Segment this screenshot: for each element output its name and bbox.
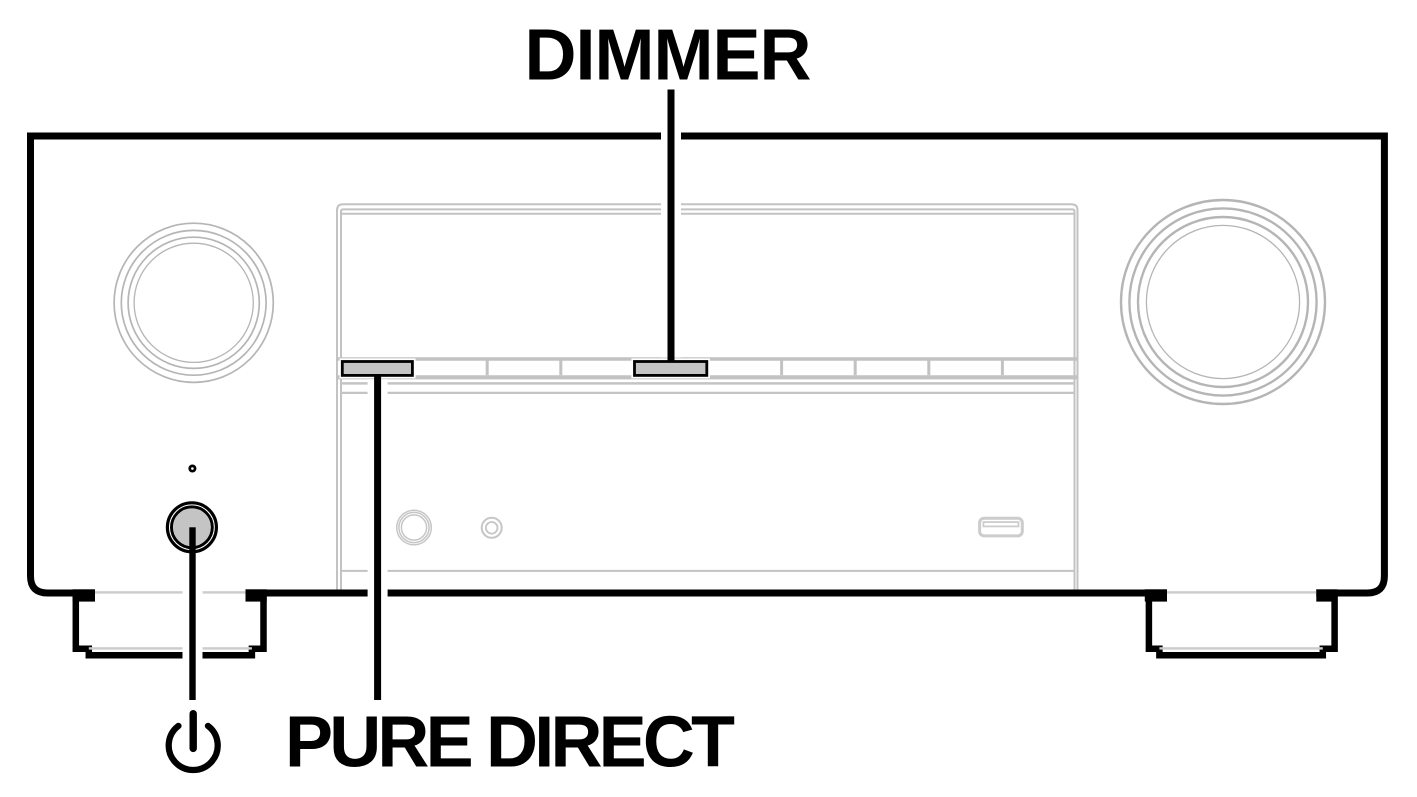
svg-text:DIMMER: DIMMER [525, 16, 811, 96]
svg-text:PURE DIRECT: PURE DIRECT [285, 702, 735, 782]
